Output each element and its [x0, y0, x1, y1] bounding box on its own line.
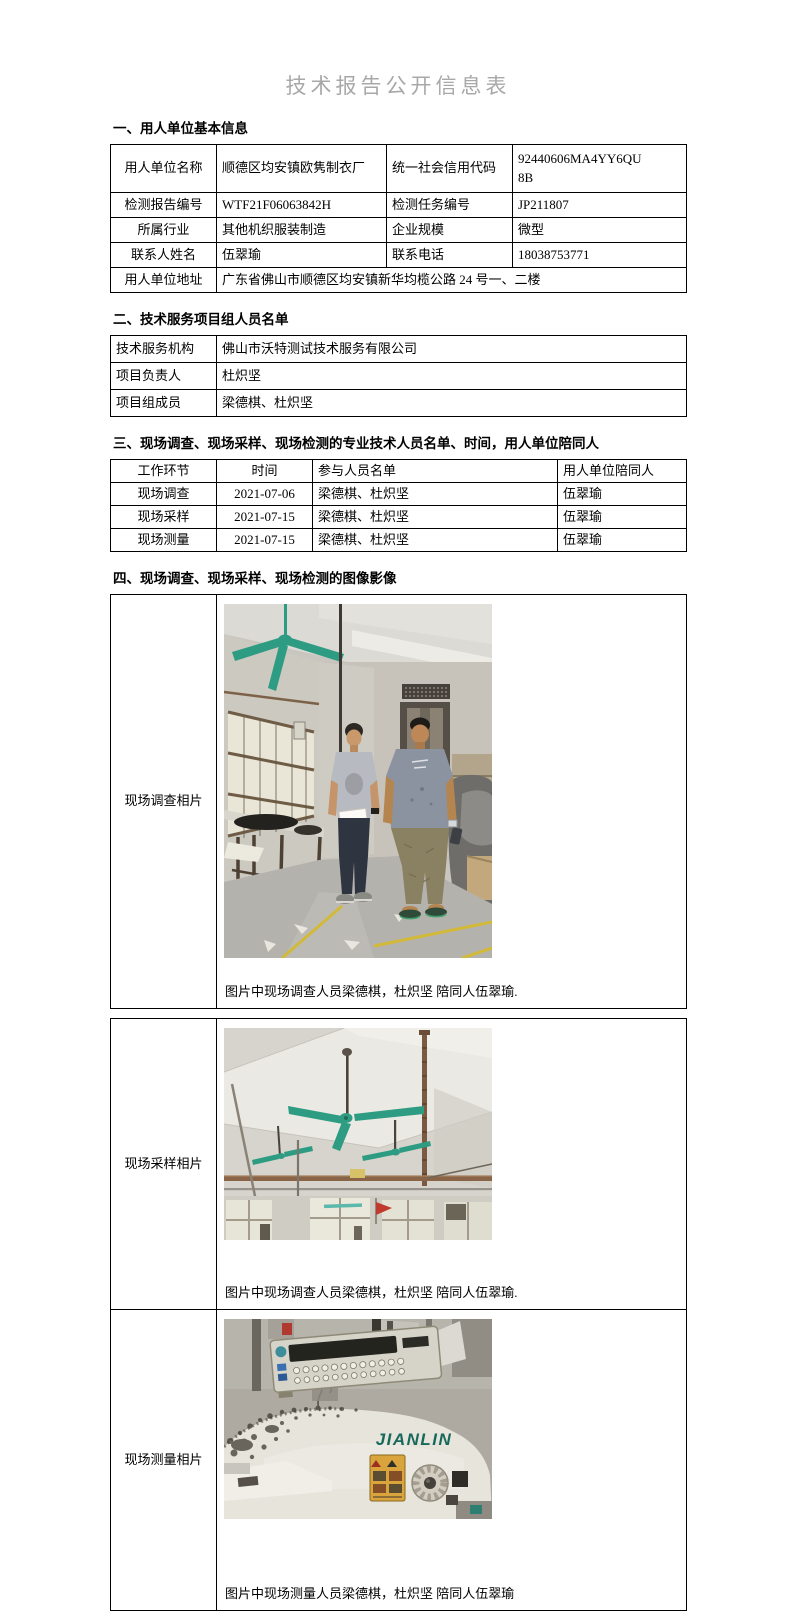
escort: 伍翠瑜 — [558, 483, 687, 506]
site-sampling-photo — [224, 1028, 492, 1240]
photo-label: 现场调查相片 — [111, 595, 217, 1009]
section1-heading: 一、用人单位基本信息 — [113, 117, 686, 137]
equipment — [260, 1224, 270, 1240]
field-value: 伍翠瑜 — [217, 243, 387, 268]
column-header: 时间 — [217, 460, 313, 483]
escort: 伍翠瑜 — [558, 506, 687, 529]
photo-row: 现场采样相片 — [111, 1019, 687, 1310]
field-label: 检测任务编号 — [387, 193, 513, 218]
field-label: 用人单位地址 — [111, 268, 217, 293]
hanging-rod — [339, 604, 342, 756]
warning-label — [370, 1455, 405, 1501]
date-value: 2021-07-15 — [217, 529, 313, 552]
photo-table-sampling-measurement: 现场采样相片 — [110, 1018, 687, 1611]
field-label: 项目组成员 — [111, 390, 217, 417]
field-value: 其他机织服装制造 — [217, 218, 387, 243]
field-value: JP211807 — [513, 193, 687, 218]
basic-info-table: 用人单位名称 顺德区均安镇欧隽制衣厂 统一社会信用代码 92440606MA4Y… — [110, 144, 687, 293]
table-row: 用人单位名称 顺德区均安镇欧隽制衣厂 统一社会信用代码 92440606MA4Y… — [111, 145, 687, 193]
machine-brand-text: JIANLIN — [376, 1430, 453, 1449]
thin-pipe — [224, 1188, 492, 1190]
table-gap — [110, 1009, 686, 1018]
teal-item — [470, 1505, 482, 1514]
adjustment-knob — [412, 1465, 448, 1501]
participants: 梁德棋、杜炽坚 — [313, 506, 558, 529]
table-row: 技术服务机构 佛山市沃特测试技术服务有限公司 — [111, 336, 687, 363]
table-row: 检测报告编号 WTF21F06063842H 检测任务编号 JP211807 — [111, 193, 687, 218]
credit-code: 92440606MA4YY6QU8B — [518, 150, 642, 188]
dark-item — [446, 1495, 458, 1505]
table-row: 现场采样 2021-07-15 梁德棋、杜炽坚 伍翠瑜 — [111, 506, 687, 529]
section2-heading: 二、技术服务项目组人员名单 — [113, 308, 686, 328]
table-row: 项目组成员 梁德棋、杜炽坚 — [111, 390, 687, 417]
page-title: 技术报告公开信息表 — [110, 70, 686, 100]
yellow-tag — [350, 1169, 365, 1178]
red-tag — [282, 1323, 292, 1335]
dark-notch — [452, 1471, 468, 1487]
field-value: WTF21F06063842H — [217, 193, 387, 218]
table-row: 联系人姓名 伍翠瑜 联系电话 18038753771 — [111, 243, 687, 268]
field-value: 微型 — [513, 218, 687, 243]
photo-row: 现场调查相片 — [111, 595, 687, 1009]
section3-heading: 三、现场调查、现场采样、现场检测的专业技术人员名单、时间，用人单位陪同人 — [113, 432, 686, 452]
field-label: 所属行业 — [111, 218, 217, 243]
electrical-box — [294, 722, 305, 739]
photo-caption: 图片中现场调查人员梁德棋，杜炽坚 陪同人伍翠瑜. — [225, 1285, 680, 1302]
section4-heading: 四、现场调查、现场采样、现场检测的图像影像 — [113, 567, 686, 587]
field-label: 联系人姓名 — [111, 243, 217, 268]
photo-label: 现场测量相片 — [111, 1310, 217, 1611]
work-stage: 现场测量 — [111, 529, 217, 552]
table-row: 现场测量 2021-07-15 梁德棋、杜炽坚 伍翠瑜 — [111, 529, 687, 552]
field-value: 杜炽坚 — [217, 363, 687, 390]
work-stage: 现场采样 — [111, 506, 217, 529]
photo-table-survey: 现场调查相片 — [110, 594, 687, 1009]
field-label: 检测报告编号 — [111, 193, 217, 218]
photo-caption: 图片中现场测量人员梁德棋，杜炽坚 陪同人伍翠瑜 — [225, 1586, 680, 1603]
table-row: 项目负责人 杜炽坚 — [111, 363, 687, 390]
field-label: 联系电话 — [387, 243, 513, 268]
table-row: 现场调查 2021-07-06 梁德棋、杜炽坚 伍翠瑜 — [111, 483, 687, 506]
participants: 梁德棋、杜炽坚 — [313, 529, 558, 552]
schedule-table: 工作环节 时间 参与人员名单 用人单位陪同人 现场调查 2021-07-06 梁… — [110, 459, 687, 552]
photo-cell: 图片中现场调查人员梁德棋，杜炽坚 陪同人伍翠瑜. — [217, 1019, 687, 1310]
equipment — [354, 1226, 362, 1240]
column-header: 参与人员名单 — [313, 460, 558, 483]
table-row: 用人单位地址 广东省佛山市顺德区均安镇新华均榄公路 24 号一、二楼 — [111, 268, 687, 293]
post — [252, 1319, 261, 1391]
field-label: 项目负责人 — [111, 363, 217, 390]
site-survey-photo — [224, 604, 492, 958]
escort: 伍翠瑜 — [558, 529, 687, 552]
field-value: 佛山市沃特测试技术服务有限公司 — [217, 336, 687, 363]
photo-caption: 图片中现场调查人员梁德棋，杜炽坚 陪同人伍翠瑜. — [225, 984, 680, 1001]
document-page: 技术报告公开信息表 一、用人单位基本信息 用人单位名称 顺德区均安镇欧隽制衣厂 … — [0, 0, 686, 1611]
field-value: 梁德棋、杜炽坚 — [217, 390, 687, 417]
date-value: 2021-07-06 — [217, 483, 313, 506]
site-measurement-photo: JIANLIN — [224, 1319, 492, 1519]
participants: 梁德棋、杜炽坚 — [313, 483, 558, 506]
column-header: 工作环节 — [111, 460, 217, 483]
service-team-table: 技术服务机构 佛山市沃特测试技术服务有限公司 项目负责人 杜炽坚 项目组成员 梁… — [110, 335, 687, 417]
photo-cell: 图片中现场调查人员梁德棋，杜炽坚 陪同人伍翠瑜. — [217, 595, 687, 1009]
photo-label: 现场采样相片 — [111, 1019, 217, 1310]
field-label: 技术服务机构 — [111, 336, 217, 363]
photo-row: 现场测量相片 — [111, 1310, 687, 1611]
table-row: 所属行业 其他机织服装制造 企业规模 微型 — [111, 218, 687, 243]
field-value: 顺德区均安镇欧隽制衣厂 — [217, 145, 387, 193]
column-header: 用人单位陪同人 — [558, 460, 687, 483]
table-header-row: 工作环节 时间 参与人员名单 用人单位陪同人 — [111, 460, 687, 483]
date-value: 2021-07-15 — [217, 506, 313, 529]
field-value: 92440606MA4YY6QU8B — [513, 145, 687, 193]
field-label: 用人单位名称 — [111, 145, 217, 193]
metal-plate — [224, 1463, 250, 1474]
field-value: 广东省佛山市顺德区均安镇新华均榄公路 24 号一、二楼 — [217, 268, 687, 293]
field-label: 企业规模 — [387, 218, 513, 243]
field-label: 统一社会信用代码 — [387, 145, 513, 193]
work-stage: 现场调查 — [111, 483, 217, 506]
field-value: 18038753771 — [513, 243, 687, 268]
photo-cell: JIANLIN — [217, 1310, 687, 1611]
